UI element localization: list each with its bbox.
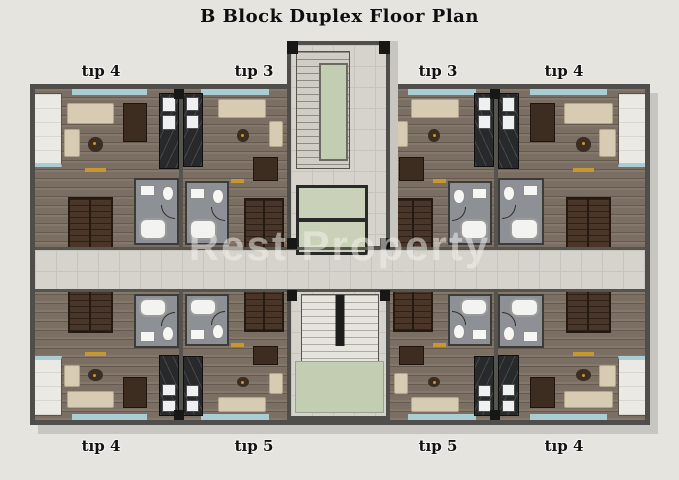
- door-swing: [502, 205, 516, 219]
- armchair: [269, 121, 283, 147]
- corridor: [35, 250, 645, 290]
- kitchen-counter: [498, 93, 519, 169]
- duplex-stairs: [244, 198, 284, 250]
- apartment-tip4-bottom-right: [498, 290, 645, 420]
- column: [174, 410, 184, 420]
- sink-vanity: [523, 185, 538, 196]
- toilet: [212, 189, 224, 204]
- coffee-table: [576, 369, 591, 381]
- column: [174, 89, 184, 99]
- toilet: [453, 189, 465, 204]
- toilet: [453, 324, 465, 339]
- dining-table: [123, 103, 147, 142]
- door-swing: [161, 205, 175, 219]
- toilet: [162, 326, 174, 341]
- bathtub: [460, 219, 488, 240]
- corner-terrace: [35, 356, 62, 416]
- toilet: [212, 324, 224, 339]
- stair-core-upper: [287, 41, 390, 250]
- party-wall: [494, 290, 498, 420]
- armchair: [599, 129, 615, 156]
- sink-vanity: [472, 188, 487, 199]
- sink-vanity: [190, 329, 205, 340]
- console-table: [573, 352, 594, 356]
- sink-vanity: [140, 331, 155, 342]
- bathroom: [498, 294, 544, 349]
- console-table: [433, 179, 447, 183]
- column: [380, 238, 390, 249]
- apartment-tip3-top-midleft: [183, 89, 287, 250]
- kitchen-counter: [498, 355, 519, 416]
- coffee-table: [88, 369, 102, 381]
- apartment-tip5-bottom-midleft: [183, 290, 287, 420]
- balcony-window-strip: [201, 89, 270, 95]
- kitchen-counter: [159, 93, 179, 169]
- stair-core-lower: [287, 290, 390, 420]
- dining-table: [530, 377, 555, 408]
- duplex-stairs: [68, 197, 113, 250]
- balcony-window-strip: [201, 414, 270, 420]
- unit-label-top-1: tıp 4: [82, 62, 121, 80]
- column: [379, 41, 390, 54]
- unit-label-bottom-4: tıp 4: [545, 437, 584, 455]
- kitchen-counter: [159, 355, 179, 416]
- armchair: [394, 373, 408, 394]
- bathroom: [448, 181, 492, 245]
- bathtub: [510, 218, 539, 240]
- sofa: [411, 397, 459, 413]
- coffee-table: [576, 137, 591, 151]
- sofa: [411, 99, 459, 118]
- armchair: [394, 121, 408, 147]
- apartment-tip4-top-right: [498, 89, 645, 250]
- sink-vanity: [140, 185, 155, 196]
- coffee-table: [237, 377, 248, 387]
- coffee-table: [428, 377, 439, 387]
- unit-label-top-4: tıp 4: [545, 62, 584, 80]
- sink-vanity: [472, 329, 487, 340]
- bathroom: [185, 181, 229, 245]
- unit-label-bottom-2: tıp 5: [235, 437, 274, 455]
- dining-table: [399, 346, 424, 366]
- balcony-window-strip: [530, 89, 606, 95]
- kitchen-counter: [183, 93, 203, 167]
- column: [490, 89, 500, 99]
- bathtub: [139, 298, 167, 316]
- elevator-shaft: [319, 63, 348, 161]
- party-wall: [179, 89, 183, 250]
- kitchen-counter: [183, 356, 203, 416]
- apartment-tip3-top-midright: [390, 89, 494, 250]
- armchair: [64, 129, 80, 156]
- toilet: [162, 186, 174, 201]
- coffee-table: [428, 129, 439, 142]
- bathroom: [498, 178, 544, 246]
- bathroom: [448, 294, 492, 346]
- console-table: [85, 168, 105, 172]
- corner-terrace: [618, 356, 645, 416]
- sink-vanity: [190, 188, 205, 199]
- dining-table: [530, 103, 555, 142]
- toilet: [503, 186, 515, 201]
- dining-table: [123, 377, 147, 408]
- duplex-stairs: [68, 290, 113, 333]
- corridor-wall-bottom: [35, 289, 645, 292]
- dining-table: [399, 157, 424, 181]
- floor-plan-page: B Block Duplex Floor Plan tıp 4 tıp 3 tı…: [0, 0, 679, 480]
- kitchen-counter: [474, 93, 494, 167]
- console-table: [231, 343, 245, 347]
- apartment-tip5-bottom-midright: [390, 290, 494, 420]
- toilet: [503, 326, 515, 341]
- balcony-window-strip: [72, 89, 147, 95]
- column: [380, 290, 390, 301]
- unit-label-top-2: tıp 3: [235, 62, 274, 80]
- kitchen-counter: [474, 356, 494, 416]
- dining-table: [253, 157, 278, 181]
- unit-label-bottom-1: tıp 4: [82, 437, 121, 455]
- balcony-window-strip: [530, 414, 606, 420]
- page-title: B Block Duplex Floor Plan: [0, 6, 679, 27]
- apartment-tip4-bottom-left: [35, 290, 179, 420]
- entrance-pad: [295, 361, 384, 413]
- column: [287, 238, 297, 249]
- duplex-stairs: [244, 290, 284, 332]
- column: [287, 41, 298, 54]
- party-wall: [179, 290, 183, 420]
- sink-vanity: [523, 331, 538, 342]
- service-shaft: [296, 185, 368, 221]
- dining-table: [253, 346, 278, 366]
- balcony-window-strip: [408, 414, 477, 420]
- console-table: [85, 352, 105, 356]
- bathtub: [189, 219, 217, 240]
- console-table: [433, 343, 447, 347]
- bathroom: [134, 294, 179, 349]
- armchair: [269, 373, 283, 394]
- balcony-window-strip: [408, 89, 477, 95]
- bathtub: [460, 298, 488, 315]
- console-table: [231, 179, 245, 183]
- balcony-window-strip: [72, 414, 147, 420]
- coffee-table: [237, 129, 248, 142]
- bathroom: [134, 178, 179, 246]
- bathtub: [510, 298, 539, 316]
- duplex-stairs: [566, 197, 612, 250]
- bathtub: [139, 218, 167, 240]
- column: [287, 290, 297, 301]
- entry-staircase: [301, 294, 379, 362]
- coffee-table: [88, 137, 102, 151]
- console-table: [573, 168, 594, 172]
- armchair: [64, 365, 80, 387]
- duplex-stairs: [566, 290, 612, 333]
- column: [490, 410, 500, 420]
- corner-terrace: [35, 93, 62, 167]
- bathroom: [185, 294, 229, 346]
- duplex-stairs: [393, 290, 433, 332]
- sofa: [564, 103, 613, 124]
- sofa: [218, 99, 266, 118]
- unit-label-bottom-3: tıp 5: [419, 437, 458, 455]
- party-wall: [494, 89, 498, 250]
- sofa: [67, 391, 115, 408]
- apartment-tip4-top-left: [35, 89, 179, 250]
- sofa: [67, 103, 115, 124]
- corner-terrace: [618, 93, 645, 167]
- duplex-stairs: [393, 198, 433, 250]
- sofa: [564, 391, 613, 408]
- sofa: [218, 397, 266, 413]
- unit-label-top-3: tıp 3: [419, 62, 458, 80]
- corridor-wall-top: [35, 247, 645, 250]
- armchair: [599, 365, 615, 387]
- bathtub: [189, 298, 217, 315]
